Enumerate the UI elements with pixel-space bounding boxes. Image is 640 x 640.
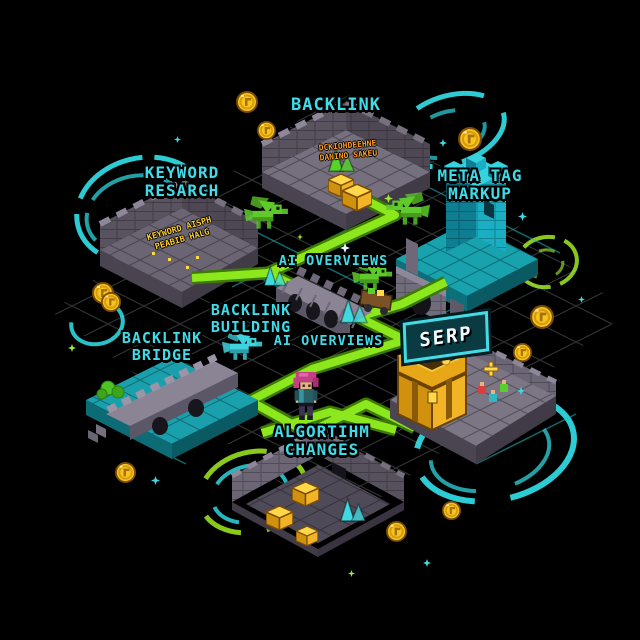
gold-block-icon[interactable] [296,526,318,546]
label-ai-overviews-top: AI OVERVIEWS [251,254,416,269]
label-ai-overviews-bottom: AI OVERVIEWS [246,334,411,349]
label-keyword-line2: RESARCH [112,182,252,200]
label-bridge-line1: BACKLINK [92,330,232,347]
label-keyword-research: KEYWORD RESARCH [112,164,252,200]
label-algo-line1: ALGORTIHM [252,423,392,441]
label-meta-tag-markup: META TAG MARKUP [410,167,550,203]
gold-block-icon[interactable] [292,482,319,506]
label-backlink: BACKLINK [276,96,396,115]
pixel-quest-map: BACKLINK KEYWORD RESARCH META TAG MARKUP… [0,0,640,640]
label-meta-line2: MARKUP [410,185,550,203]
label-backlink-bridge: BACKLINK BRIDGE [92,330,232,364]
label-meta-line1: META TAG [410,167,550,185]
label-algo-line2: CHANGES [252,441,392,459]
label-bridge-line2: BRIDGE [92,347,232,364]
gold-block-icon[interactable] [266,506,293,530]
label-algorithm-changes: ALGORTIHM CHANGES [252,423,392,459]
label-building-line1: BACKLINK [181,302,321,319]
label-keyword-line1: KEYWORD [112,164,252,182]
